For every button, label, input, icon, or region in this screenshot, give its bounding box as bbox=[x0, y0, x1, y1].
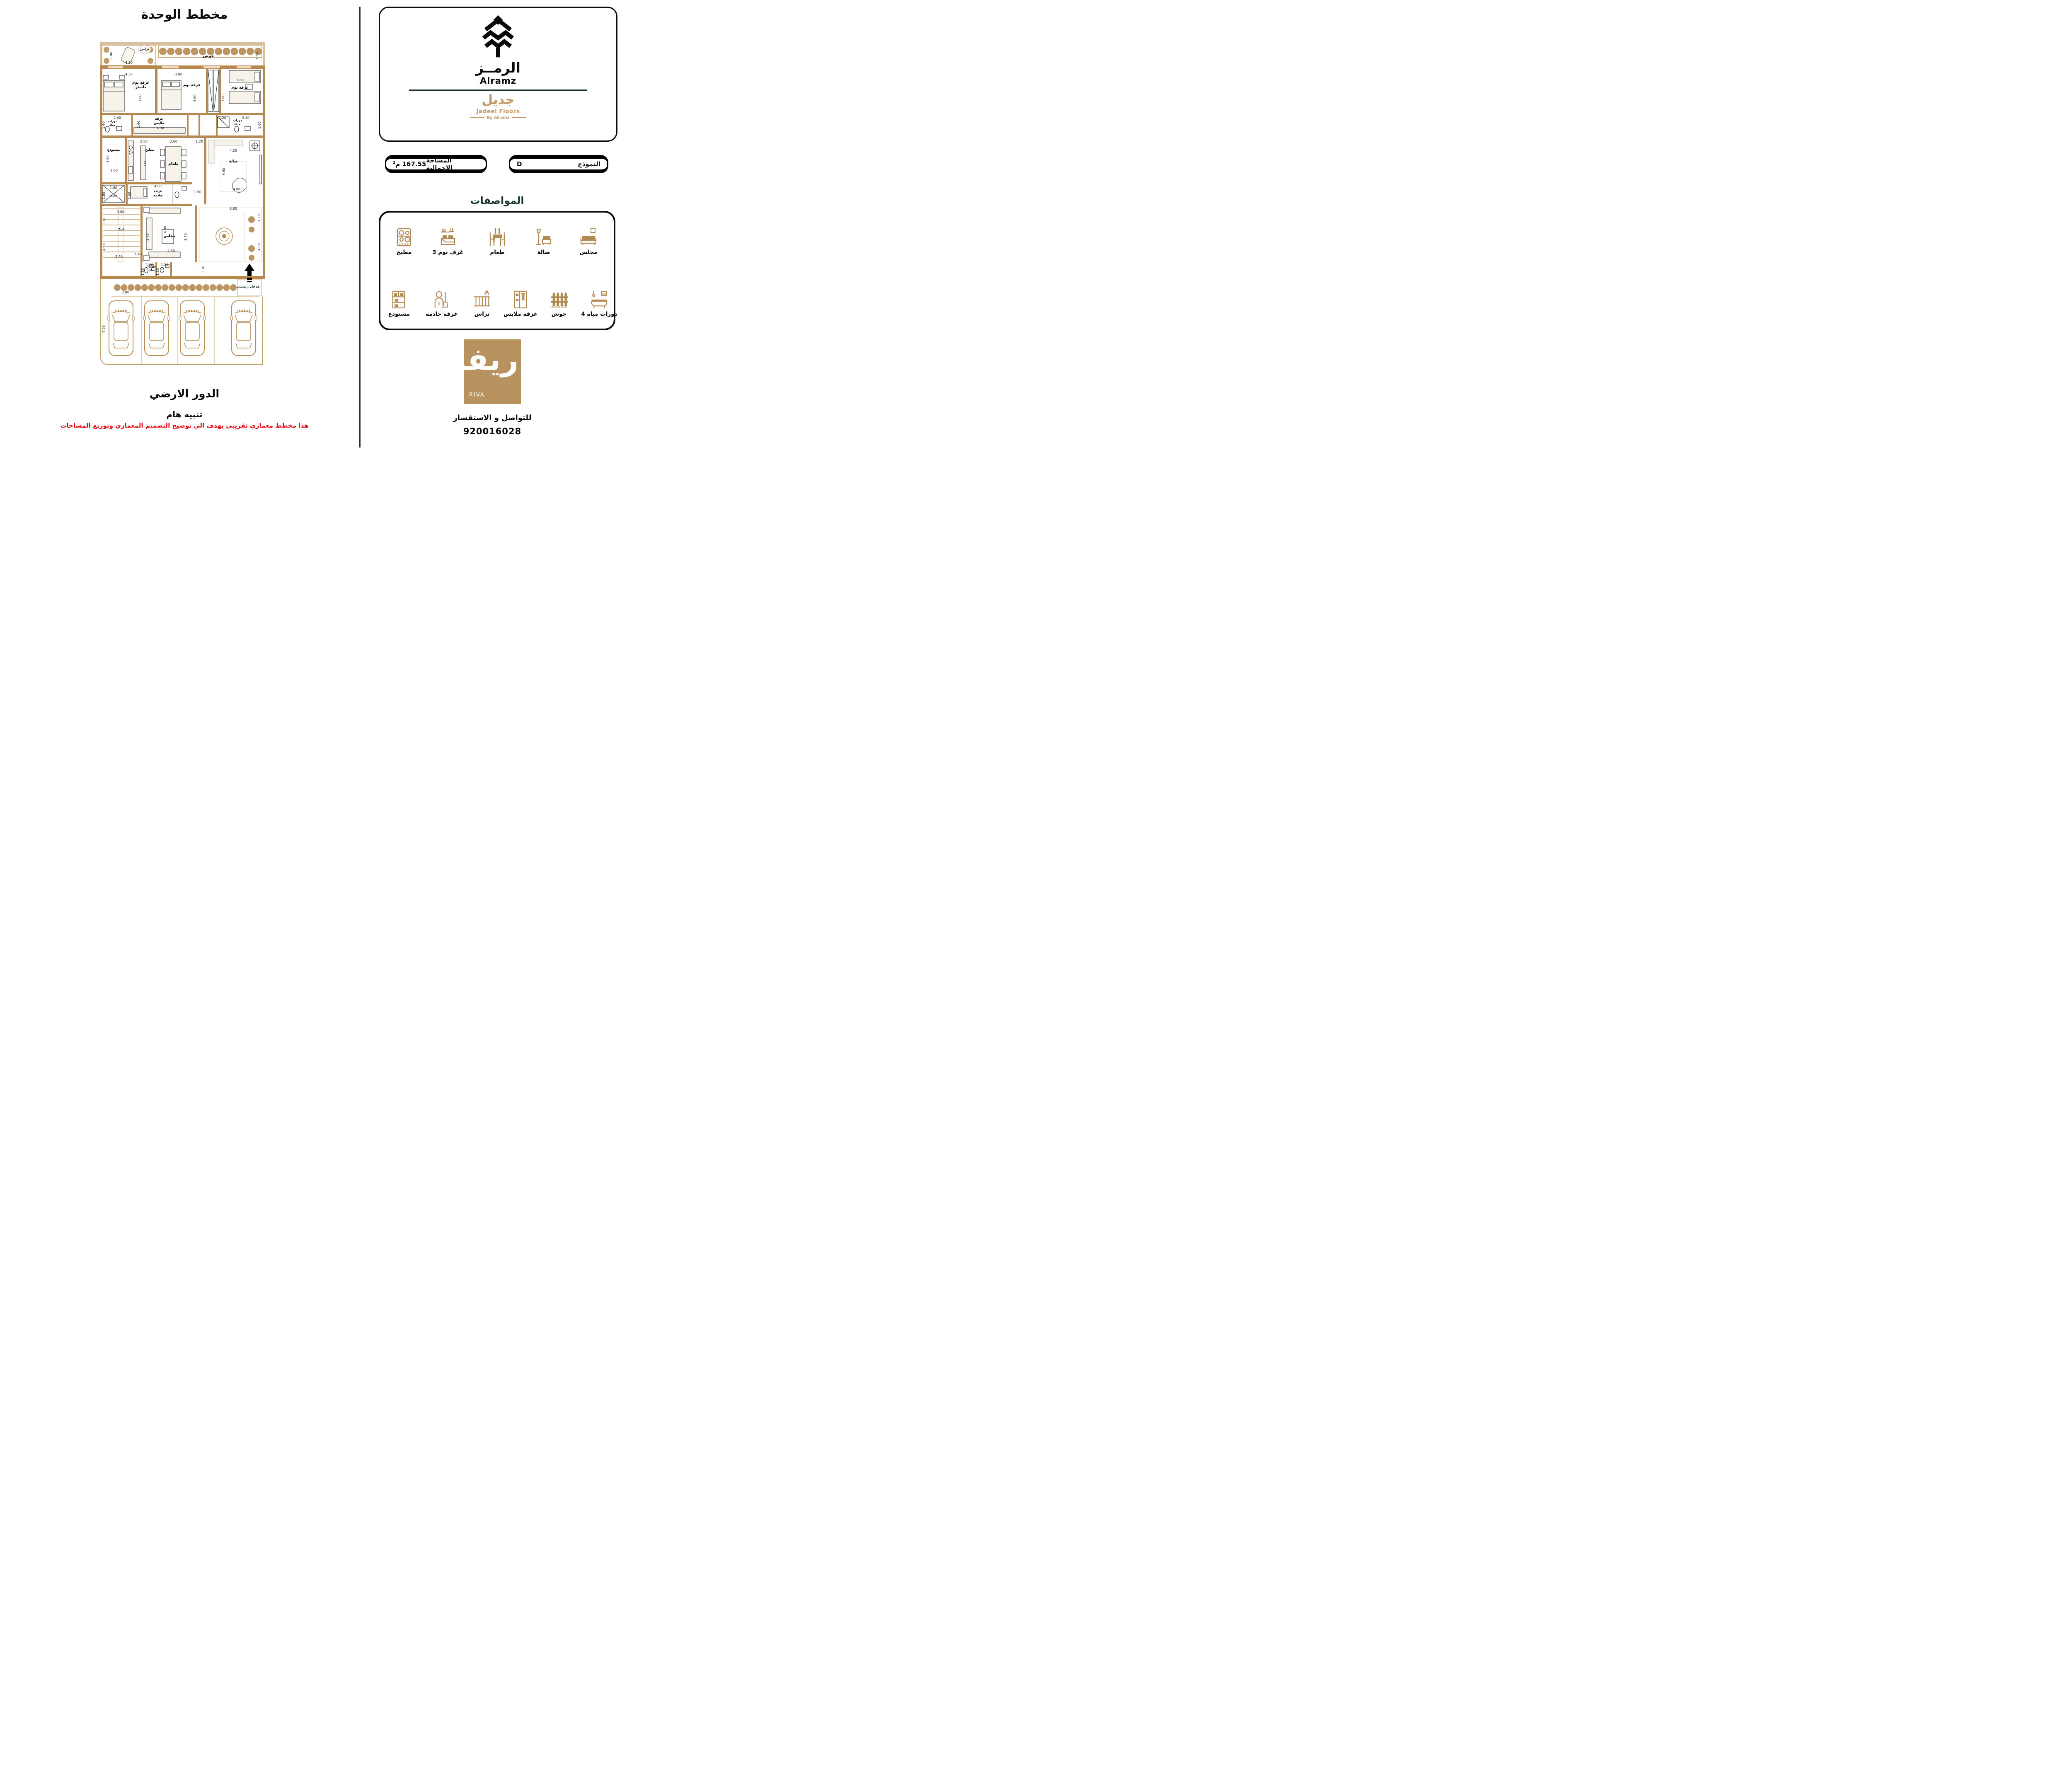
spec-majlis: مجلس bbox=[569, 227, 608, 256]
spec-label: 4 دورات مياة bbox=[579, 311, 619, 317]
spec-label: مستودع bbox=[379, 311, 419, 317]
notice-block: تنبيه هام هذا مخطط معماري تقريبي يهدف ال… bbox=[50, 409, 319, 429]
room-label: غرفة نوم bbox=[183, 83, 201, 87]
dimension-label: 1.50 bbox=[141, 268, 145, 276]
dimension-label: 1.70 bbox=[257, 214, 261, 222]
wardrobe-icon bbox=[511, 290, 530, 309]
plant-icon bbox=[104, 58, 109, 64]
bath-fixtures bbox=[105, 117, 250, 133]
dimension-label: 1.20 bbox=[161, 263, 168, 267]
dimension-label: 1.80 bbox=[109, 52, 113, 59]
bush-icon bbox=[216, 284, 223, 291]
dimension-label: 1.50 bbox=[156, 268, 160, 276]
bush-icon bbox=[175, 284, 182, 291]
room-label: غرفة نوم bbox=[132, 81, 150, 85]
room-label: غرفة bbox=[155, 117, 164, 121]
car-icon bbox=[108, 301, 134, 356]
riva-latin: RIVA bbox=[469, 392, 485, 398]
brand-card: الرمــز Alramz جديل Jadeel Floors By Alr… bbox=[379, 7, 617, 142]
spec-livingroom: صالة bbox=[524, 227, 564, 256]
dimension-label: 4.00 bbox=[163, 226, 167, 233]
model-pill: D النموذج bbox=[509, 155, 608, 173]
dimension-label: 4.00 bbox=[257, 243, 261, 251]
notice-text: هذا مخطط معماري تقريبي يهدف الي توضيح ال… bbox=[50, 422, 319, 429]
patio-garden bbox=[199, 207, 261, 262]
room-label: غرفة نوم bbox=[231, 86, 249, 90]
room-label: ملابس bbox=[154, 121, 164, 125]
dimension-label: 1.80 bbox=[110, 169, 118, 172]
subbrand-by-text: By Alramz bbox=[487, 116, 509, 120]
spec-label: غرفة ملابس bbox=[501, 311, 540, 317]
subbrand-name: Jadeel Floors bbox=[476, 108, 520, 115]
bed-icon bbox=[438, 227, 458, 247]
model-value: D bbox=[517, 160, 522, 168]
dimension-label: 3.80 bbox=[175, 73, 182, 76]
room-label: مجلس bbox=[164, 234, 175, 238]
dimension-label: 3.80 bbox=[117, 210, 124, 214]
bush-icon bbox=[169, 284, 175, 291]
dimension-label: 3.80 bbox=[143, 160, 147, 167]
bush-icon bbox=[134, 284, 141, 291]
living-room bbox=[208, 140, 261, 192]
hedge-row bbox=[114, 284, 237, 291]
spec-label: صالة bbox=[524, 249, 564, 256]
maid-icon bbox=[432, 290, 451, 309]
bush-icon bbox=[249, 227, 254, 232]
contact-block: للتواصل و الاستفسار 920016028 bbox=[379, 414, 606, 436]
room-label: دورات bbox=[233, 119, 242, 122]
car-icon bbox=[143, 301, 170, 356]
contact-phone[interactable]: 920016028 bbox=[379, 426, 606, 436]
dimension-label: 4.50 bbox=[102, 243, 106, 251]
bush-icon bbox=[230, 284, 237, 291]
dimension-label: 1.20 bbox=[196, 140, 203, 143]
alramz-tree-logo-icon bbox=[477, 15, 520, 60]
wall bbox=[100, 42, 265, 45]
dimension-label: 3.80 bbox=[236, 78, 244, 82]
contact-label: للتواصل و الاستفسار bbox=[379, 414, 606, 422]
bush-icon bbox=[191, 48, 198, 55]
bush-icon bbox=[175, 48, 182, 55]
spec-bedrooms: 3 غرف نوم bbox=[428, 227, 468, 256]
dimension-label: 1.80 bbox=[110, 186, 117, 190]
room-label: تراس bbox=[140, 47, 149, 51]
dimension-label: 1.50 bbox=[194, 190, 201, 194]
dimension-label: 1.20 bbox=[219, 116, 226, 120]
entrance-label: مدخل رئيسي bbox=[237, 285, 260, 289]
spec-label: طعام bbox=[477, 249, 517, 256]
dimension-label: 4.30 bbox=[125, 61, 133, 65]
bush-icon bbox=[148, 284, 155, 291]
spec-kitchen: مطبخ bbox=[384, 227, 424, 256]
room-label: مطبخ bbox=[145, 148, 154, 152]
dimension-label: 5.60 bbox=[222, 168, 226, 175]
dining-icon bbox=[487, 227, 507, 247]
riva-arabic-calligraphy: ريفا bbox=[464, 339, 518, 382]
sofa-icon bbox=[579, 227, 598, 247]
bush-icon bbox=[223, 284, 230, 291]
column-divider bbox=[359, 7, 361, 447]
dimension-label: 1.60 bbox=[137, 121, 140, 128]
area-value: 167.55 م2 bbox=[393, 160, 426, 168]
dimension-label: 1.20 bbox=[146, 263, 153, 267]
spec-label: تراس bbox=[462, 311, 502, 317]
floor-plan: تراسحوشغرفة نومماسترغرفة نومغرفة نومدورا… bbox=[100, 42, 266, 370]
dimension-label: 2.60 bbox=[170, 140, 177, 143]
brand-name-latin: Alramz bbox=[480, 76, 516, 86]
dimension-label: 2.50 bbox=[140, 140, 148, 143]
stove-icon bbox=[394, 227, 414, 247]
car-icon bbox=[230, 301, 257, 356]
spec-label: غرفة خادمة bbox=[422, 311, 462, 317]
dimension-label: 3.60 bbox=[193, 94, 197, 102]
spec-maidroom: غرفة خادمة bbox=[422, 290, 462, 317]
dimension-label: 1.20 bbox=[201, 266, 205, 273]
dimension-label: 3.80 bbox=[230, 207, 237, 210]
dimension-label: 1.60 bbox=[258, 121, 261, 129]
room-label: مستودع bbox=[107, 148, 120, 152]
fence-icon bbox=[549, 290, 569, 309]
bush-icon bbox=[248, 216, 255, 223]
dimension-label: 3.80 bbox=[106, 155, 110, 163]
room-label: طعام bbox=[168, 162, 178, 166]
spec-yard: حوش bbox=[539, 290, 579, 317]
bush-icon bbox=[249, 255, 254, 261]
plant-icon bbox=[148, 58, 153, 64]
model-label: النموذج bbox=[578, 160, 600, 168]
room-label: مياة bbox=[109, 123, 115, 127]
dimension-label: 4.30 bbox=[157, 126, 164, 130]
room-label: درج bbox=[119, 227, 124, 230]
dimension-label: 2.40 bbox=[242, 116, 249, 120]
dimension-label: 1.60 bbox=[102, 121, 106, 129]
spec-label: 3 غرف نوم bbox=[428, 249, 468, 256]
bush-icon bbox=[162, 284, 168, 291]
riva-logo: ريفا RIVA bbox=[464, 339, 521, 404]
car-icon bbox=[179, 301, 206, 356]
specs-box: مطبخ 3 غرف نوم bbox=[379, 211, 615, 330]
dimension-label: 7.00 bbox=[102, 325, 106, 333]
spec-label: مجلس bbox=[569, 249, 608, 256]
dimension-label: 4.30 bbox=[167, 249, 175, 253]
dimension-label: 5.70 bbox=[184, 233, 188, 241]
bush-icon bbox=[223, 48, 230, 55]
bush-icon bbox=[128, 284, 134, 291]
page-title: مخطط الوحدة bbox=[99, 7, 269, 22]
spec-label: مطبخ bbox=[384, 249, 424, 256]
bush-icon bbox=[114, 284, 121, 291]
notice-title: تنبيه هام bbox=[50, 409, 319, 419]
room-label: مصعد bbox=[109, 194, 117, 197]
bush-icon bbox=[248, 245, 255, 252]
room-label: دورات bbox=[108, 120, 117, 123]
room-label: غرفة bbox=[154, 189, 162, 193]
dimension-label: 4.00 bbox=[233, 187, 240, 191]
spec-storage: مستودع bbox=[379, 290, 419, 317]
dimension-label: 4.00 bbox=[230, 149, 237, 152]
subbrand-calligraphy: جديل bbox=[482, 94, 515, 106]
dimension-label: 1.40 bbox=[134, 252, 142, 256]
dimension-label: 1.80 bbox=[255, 52, 259, 60]
spec-bathrooms: 4 دورات مياة bbox=[579, 290, 619, 317]
bed-master bbox=[103, 75, 125, 111]
bush-icon bbox=[231, 48, 238, 55]
dimension-label: 3.60 bbox=[138, 94, 142, 102]
lamp-armchair-icon bbox=[534, 227, 554, 247]
room-label: مياة bbox=[235, 123, 240, 126]
bush-icon bbox=[159, 48, 167, 55]
shelves-icon bbox=[390, 290, 409, 309]
brand-name-arabic: الرمــز bbox=[476, 61, 520, 75]
room-label: خادمة bbox=[153, 194, 163, 197]
dimension-label: 2.40 bbox=[114, 116, 121, 120]
brand-divider bbox=[409, 89, 587, 91]
dimension-label: 1.20 bbox=[102, 218, 106, 225]
spec-dressing: غرفة ملابس bbox=[501, 290, 540, 317]
bush-icon bbox=[247, 48, 254, 55]
bush-icon bbox=[155, 284, 162, 291]
area-label: المساحة الاجمالية bbox=[426, 157, 479, 172]
room-label: مياة bbox=[150, 268, 155, 271]
flyer-page: مخطط الوحدة bbox=[0, 0, 630, 447]
room-label: ماستر bbox=[135, 85, 146, 89]
dimension-label: 1.60 bbox=[102, 192, 106, 199]
closet bbox=[208, 70, 219, 111]
bush-icon bbox=[182, 284, 189, 291]
bush-icon bbox=[203, 284, 209, 291]
subbrand-byline: By Alramz bbox=[470, 116, 526, 120]
bush-icon bbox=[210, 284, 216, 291]
bathtub-icon bbox=[590, 290, 609, 309]
bush-icon bbox=[215, 48, 222, 55]
dimension-label: 5.70 bbox=[146, 233, 150, 241]
spec-label: حوش bbox=[539, 311, 579, 317]
bed-2 bbox=[161, 80, 181, 109]
plant-icon bbox=[104, 47, 109, 53]
balustrade-icon bbox=[472, 290, 491, 309]
dimension-label: 2.40 bbox=[115, 255, 123, 259]
area-pill: 167.55 م2 المساحة الاجمالية bbox=[385, 155, 487, 173]
bush-icon bbox=[167, 48, 174, 55]
dimension-label: 4.60 bbox=[154, 184, 162, 188]
floor-name: الدور الارضي bbox=[99, 388, 269, 400]
specs-heading: المواصفات bbox=[379, 195, 615, 206]
bush-icon bbox=[189, 284, 196, 291]
room-label: صالة bbox=[229, 160, 238, 164]
bush-icon bbox=[121, 284, 127, 291]
dimension-label: 2.80 bbox=[122, 290, 129, 294]
bush-icon bbox=[196, 284, 203, 291]
bush-icon bbox=[183, 48, 191, 55]
bush-icon bbox=[141, 284, 148, 291]
dimension-label: 3.60 bbox=[221, 94, 225, 102]
dimension-label: 4.30 bbox=[125, 73, 133, 76]
dimension-label: 1.60 bbox=[128, 192, 131, 199]
room-label: حوش bbox=[203, 54, 214, 58]
bush-icon bbox=[239, 48, 246, 55]
riva-square: ريفا RIVA bbox=[464, 339, 521, 404]
spec-terrace: تراس bbox=[462, 290, 502, 317]
spec-dining: طعام bbox=[477, 227, 517, 256]
